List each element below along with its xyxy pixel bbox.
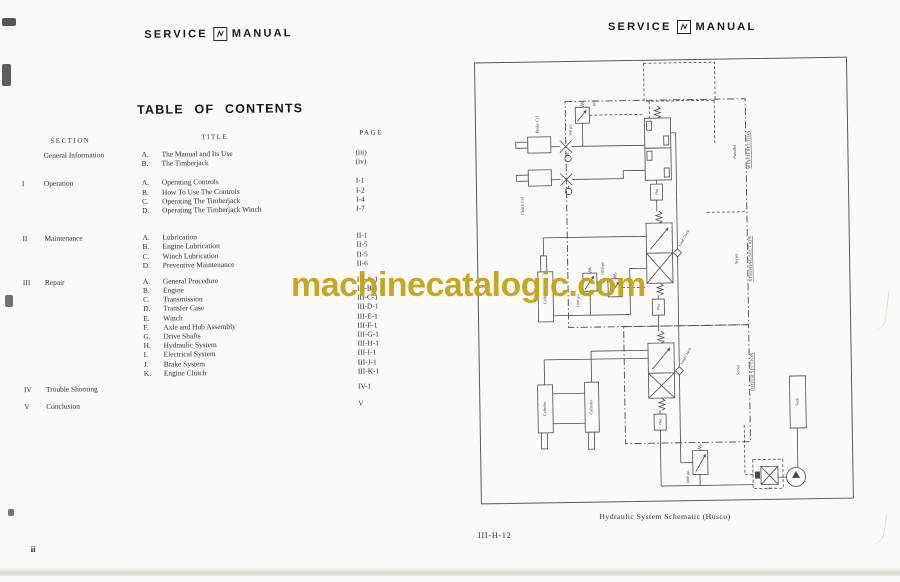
toc-item-letter: B. — [142, 187, 162, 196]
toc-numeral — [22, 207, 44, 216]
section-labels: Parallel WINCH SECTION Series STEERING S… — [732, 130, 755, 391]
page-number: ii — [31, 544, 36, 554]
toc-item-letter — [144, 401, 164, 410]
toc-row: IV Trouble Shooting IV-1 — [24, 381, 434, 394]
winch-section-label: WINCH SECTION — [746, 130, 752, 169]
toc-numeral — [23, 324, 45, 333]
toc-numeral — [24, 342, 46, 351]
relief-500-ref-label: REF — [592, 100, 596, 106]
toc-numeral — [22, 160, 44, 169]
toc-item-letter: B. — [143, 286, 163, 295]
column-header-page: PAGE — [359, 129, 383, 136]
relief-valve-1800psi: 1800 psi — [686, 444, 709, 484]
column-header-title: TITLE — [201, 134, 228, 141]
toc-numeral — [23, 296, 45, 305]
toc-item-letter: C. — [143, 295, 163, 304]
scanned-manual-spread: SERVICE MANUAL TABLE OF CONTENTS SECTION… — [0, 0, 900, 582]
toc-item-letter: D. — [143, 304, 163, 313]
toc-item-letter: B. — [142, 159, 162, 168]
toc-numeral — [23, 305, 45, 314]
toc-item-page: (iv) — [356, 156, 416, 166]
toc-item-letter: D. — [142, 206, 162, 215]
figure-caption: Hydraulic System Schematic (Husco) — [475, 512, 855, 521]
relief-500-label: 500 psi — [568, 124, 572, 135]
winch-valve-block: Plug — [644, 106, 671, 200]
toc-section-name — [46, 369, 144, 379]
hydraulic-pump — [786, 467, 805, 486]
toc-item-letter: H. — [144, 341, 164, 350]
toc-numeral: III — [23, 278, 45, 287]
toc-numeral — [24, 370, 46, 379]
winch-mode-label: Parallel — [732, 144, 737, 160]
toc-item-page: V — [358, 398, 418, 408]
toc-item-page: IV-1 — [358, 381, 418, 391]
toc-item-letter: K. — [144, 368, 164, 377]
dozer-cylinder-1: Cylinder — [538, 385, 554, 449]
toc-section-name: Conclusion — [46, 401, 144, 411]
reservoir-tank: Tank — [789, 376, 806, 428]
toc-numeral — [23, 315, 45, 324]
watermark: machinecatalogic.com — [291, 266, 646, 305]
tank-label: Tank — [794, 397, 799, 406]
toc-item-title: Operating The Timberjack Winch — [162, 204, 320, 215]
dozer-mode-label: Series — [735, 364, 740, 375]
service-label: SERVICE — [608, 21, 672, 33]
toc-numeral: II — [22, 234, 44, 243]
steering-section-label: STEERING SECTION — [747, 235, 753, 281]
toc-numeral — [24, 360, 46, 369]
relief-1800-label: 1800 psi — [686, 471, 690, 484]
toc-item-letter — [144, 384, 164, 393]
brake-cylinder: Brake Cyl — [515, 115, 572, 163]
steering-valve-block: Plug Load Check — [646, 211, 692, 316]
toc-title: TABLE OF CONTENTS — [137, 101, 303, 117]
toc-numeral: IV — [24, 385, 46, 394]
manual-label: MANUAL — [696, 21, 757, 33]
toc-item-letter: J. — [144, 359, 164, 368]
toc-numeral: V — [24, 402, 46, 411]
manual-label: MANUAL — [232, 27, 293, 40]
toc-item-letter: I. — [144, 350, 164, 359]
toc-numeral: I — [22, 179, 44, 188]
toc-item-letter: G. — [143, 332, 163, 341]
toc-numeral — [23, 287, 45, 296]
dozer-cylinder-2-label: Cylinder — [588, 399, 593, 414]
toc-section-name — [45, 261, 143, 271]
column-header-section: SECTION — [50, 137, 90, 144]
steering-load-check — [673, 249, 681, 257]
dozer-valve-block: Plug Load Check — [648, 331, 694, 431]
toc-item-page: III-K-1 — [358, 366, 418, 376]
toc-section-name — [44, 206, 142, 216]
dozer-plug-label: Plug — [658, 419, 662, 426]
toc-item-letter: A. — [142, 150, 162, 159]
toc-item-letter: B. — [142, 242, 162, 251]
toc-item-letter: D. — [143, 260, 163, 269]
toc-item-letter: A. — [143, 277, 163, 286]
steering-load-check-label: Load Check — [678, 229, 691, 247]
toc-section-name — [44, 159, 142, 169]
toc-item-letter: C. — [142, 196, 162, 205]
toc-numeral — [22, 151, 44, 160]
clutch-cylinder: Clutch Cyl — [516, 169, 573, 215]
page-reference: III-H-12 — [478, 531, 512, 540]
toc-item-title — [164, 382, 322, 393]
toc-item-letter: C. — [143, 251, 163, 260]
toc-item-title — [164, 399, 322, 410]
toc-numeral — [22, 243, 44, 252]
filter-code-label: 343 — [767, 486, 772, 490]
clutch-cyl-label: Clutch Cyl — [520, 196, 525, 215]
toc-item-letter: A. — [142, 233, 162, 242]
dozer-cylinder-2: Cylinder — [585, 382, 600, 449]
dozer-load-check-label: Load Check — [680, 347, 693, 365]
brand-logo-icon — [677, 20, 691, 34]
dozer-section-label: DOZER SECTION — [749, 352, 755, 391]
toc-item-letter: E. — [143, 313, 163, 322]
toc-item-title: Engine Clutch — [164, 367, 322, 378]
toc-numeral — [23, 333, 45, 342]
toc-item-letter: A. — [142, 178, 162, 187]
toc-numeral — [22, 188, 44, 197]
toc-section-name: Trouble Shooting — [46, 384, 144, 394]
winch-plug-label: Plug — [655, 189, 659, 196]
toc-item-page: I-7 — [356, 203, 416, 213]
brake-cyl-label: Brake Cyl — [534, 115, 539, 133]
toc-numeral — [23, 252, 45, 261]
toc-item-letter: F. — [143, 322, 163, 331]
dozer-load-check — [675, 367, 683, 375]
toc-numeral — [24, 351, 46, 360]
left-page-header: SERVICE MANUAL — [144, 26, 292, 42]
suction-filter: 343 — [753, 459, 783, 490]
toc-numeral — [23, 262, 45, 271]
toc-numeral — [22, 198, 44, 207]
service-label: SERVICE — [144, 28, 208, 41]
steering-plug-label: Plug — [656, 304, 660, 311]
brand-logo-icon — [213, 27, 227, 41]
steering-mode-label: Series — [734, 253, 739, 264]
right-page-header: SERVICE MANUAL — [608, 20, 756, 34]
toc-item-title: The Timberjack — [162, 157, 320, 168]
toc-row: V Conclusion V — [24, 398, 434, 411]
dozer-cylinder-1-label: Cylinder — [542, 401, 547, 416]
